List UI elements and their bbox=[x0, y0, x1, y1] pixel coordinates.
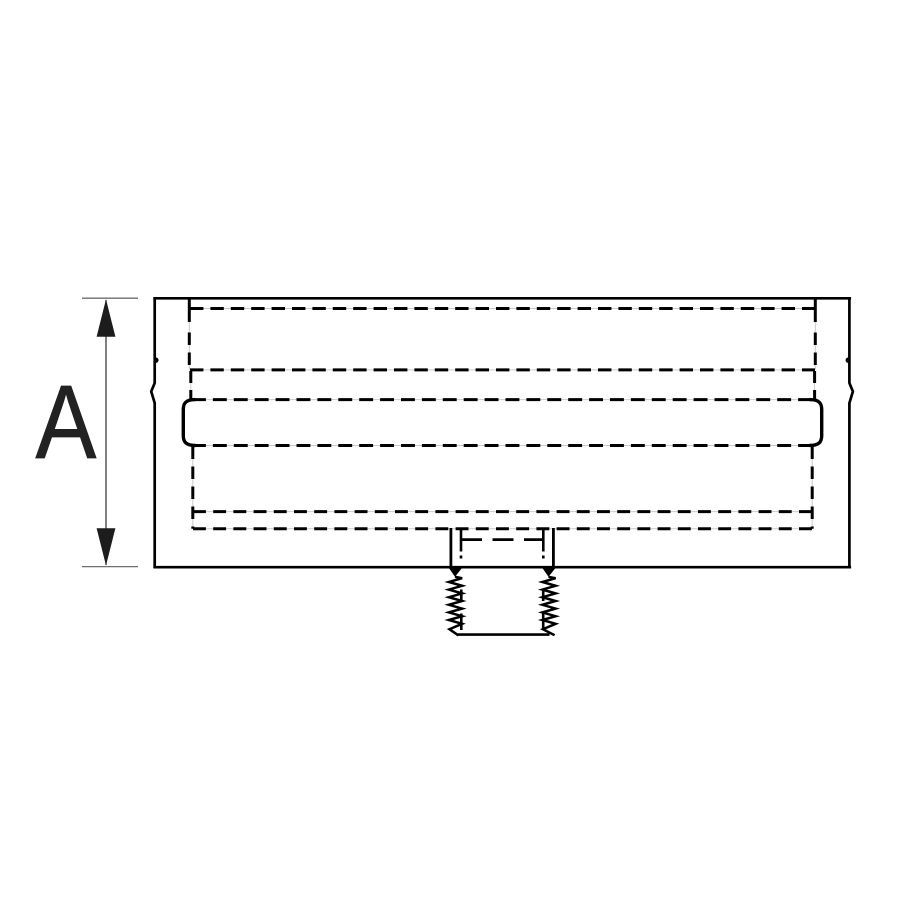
svg-text:A: A bbox=[35, 363, 96, 480]
